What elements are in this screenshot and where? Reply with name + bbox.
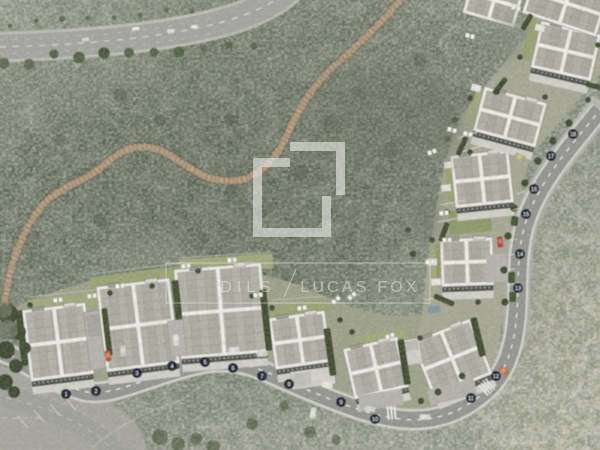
svg-text:LUCAS FOX: LUCAS FOX <box>300 279 420 296</box>
svg-text:DILS: DILS <box>220 279 276 296</box>
